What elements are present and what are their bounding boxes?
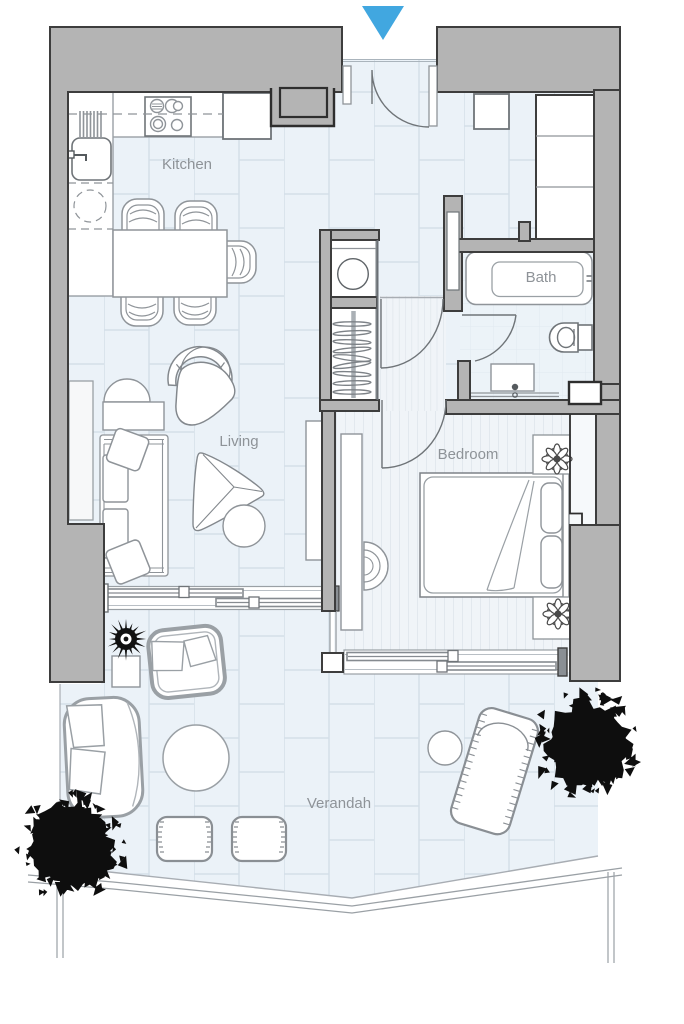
svg-text:Bedroom: Bedroom xyxy=(438,446,499,463)
svg-text:Bath: Bath xyxy=(526,269,557,286)
svg-text:Kitchen: Kitchen xyxy=(162,156,212,173)
svg-text:Living: Living xyxy=(219,433,258,450)
svg-text:Verandah: Verandah xyxy=(307,795,371,812)
